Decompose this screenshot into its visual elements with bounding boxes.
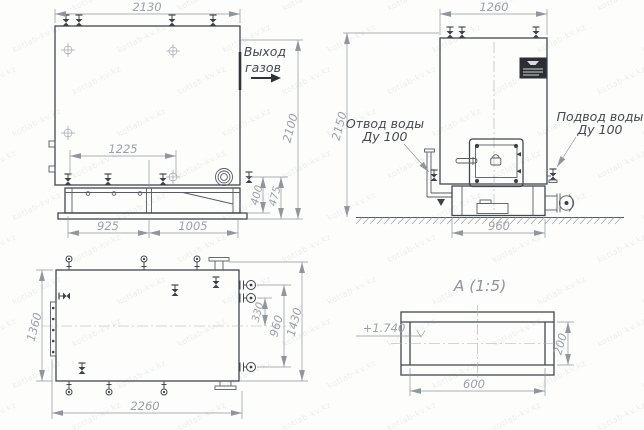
valve-icon xyxy=(63,15,217,26)
dim-text: 600 xyxy=(463,377,485,391)
label-text: газов xyxy=(245,60,281,75)
valve-icon xyxy=(447,27,540,38)
front-view: 2130 2100 1225 xyxy=(49,0,303,238)
water-outlet-pipe xyxy=(425,149,453,206)
dimension-side-width: 1260 xyxy=(440,0,547,35)
label-text: Выход xyxy=(244,44,286,59)
hinge-strip xyxy=(51,302,57,356)
padlock-icon xyxy=(491,155,501,165)
ash-hatch xyxy=(477,204,508,214)
nameplate xyxy=(520,58,546,78)
drawing-svg: 2130 2100 1225 xyxy=(0,0,644,430)
door-handle xyxy=(456,157,477,165)
label-text: Ду 100 xyxy=(362,129,408,144)
dim-text: 1430 xyxy=(284,306,305,338)
dim-text: 925 xyxy=(97,219,119,233)
boiler-body-front xyxy=(55,26,240,185)
flange-stub-bottom xyxy=(215,381,236,390)
furnace-door xyxy=(456,139,523,187)
dimension-top-height: 1360 xyxy=(24,270,53,381)
level-mark: +1.740 xyxy=(356,321,425,337)
dim-text: 2260 xyxy=(130,399,159,413)
dim-text: 1005 xyxy=(178,219,207,233)
center-mark-icon xyxy=(61,43,180,184)
dimension-heights-front: 400 475 xyxy=(246,177,303,219)
burner-stub xyxy=(545,194,574,213)
technical-drawing: kotlab-kv.kzkotlab-kv.kzkotlab-kv.kzkotl… xyxy=(0,0,644,430)
base-frame-side xyxy=(452,186,545,216)
level-text: +1.740 xyxy=(363,321,406,335)
wall-tab xyxy=(49,166,55,172)
flange-icon xyxy=(216,169,233,186)
dimension-front-inner: 1225 xyxy=(70,142,176,188)
water-inlet-valve xyxy=(547,169,557,183)
flange-stub-top xyxy=(209,258,229,271)
valve-icon xyxy=(431,170,438,181)
water-inlet-label: Подвод воды Ду 100 xyxy=(557,109,644,167)
detail-view: А (1:5) 600 200 xyxy=(356,277,574,396)
side-view: 1260 2150 960 Отвод воды Ду 100 xyxy=(329,0,644,238)
gas-outlet-label: Выход газов xyxy=(244,44,286,83)
water-outlet-label: Отвод воды Ду 100 xyxy=(346,116,429,172)
dim-text: 1260 xyxy=(479,0,508,14)
wall-tab xyxy=(49,141,55,147)
label-text: Ду 100 xyxy=(577,122,623,137)
boiler-body-top xyxy=(56,270,239,381)
dim-text: 960 xyxy=(488,219,510,233)
dim-text: 1360 xyxy=(24,311,45,343)
dim-text: 2130 xyxy=(132,0,161,14)
valve-icon xyxy=(59,256,220,395)
dim-text: 1225 xyxy=(108,142,137,156)
base-frame-front xyxy=(58,188,247,219)
dimension-side-base: 960 xyxy=(452,219,545,238)
dim-text: 2100 xyxy=(280,112,301,144)
dim-text: 330 xyxy=(250,301,267,324)
detail-title: А (1:5) xyxy=(453,277,507,295)
top-view: 1360 2260 330 960 1430 xyxy=(24,256,308,419)
flow-arrow-icon xyxy=(437,199,445,206)
dimension-top-right: 330 960 1430 xyxy=(229,262,308,381)
